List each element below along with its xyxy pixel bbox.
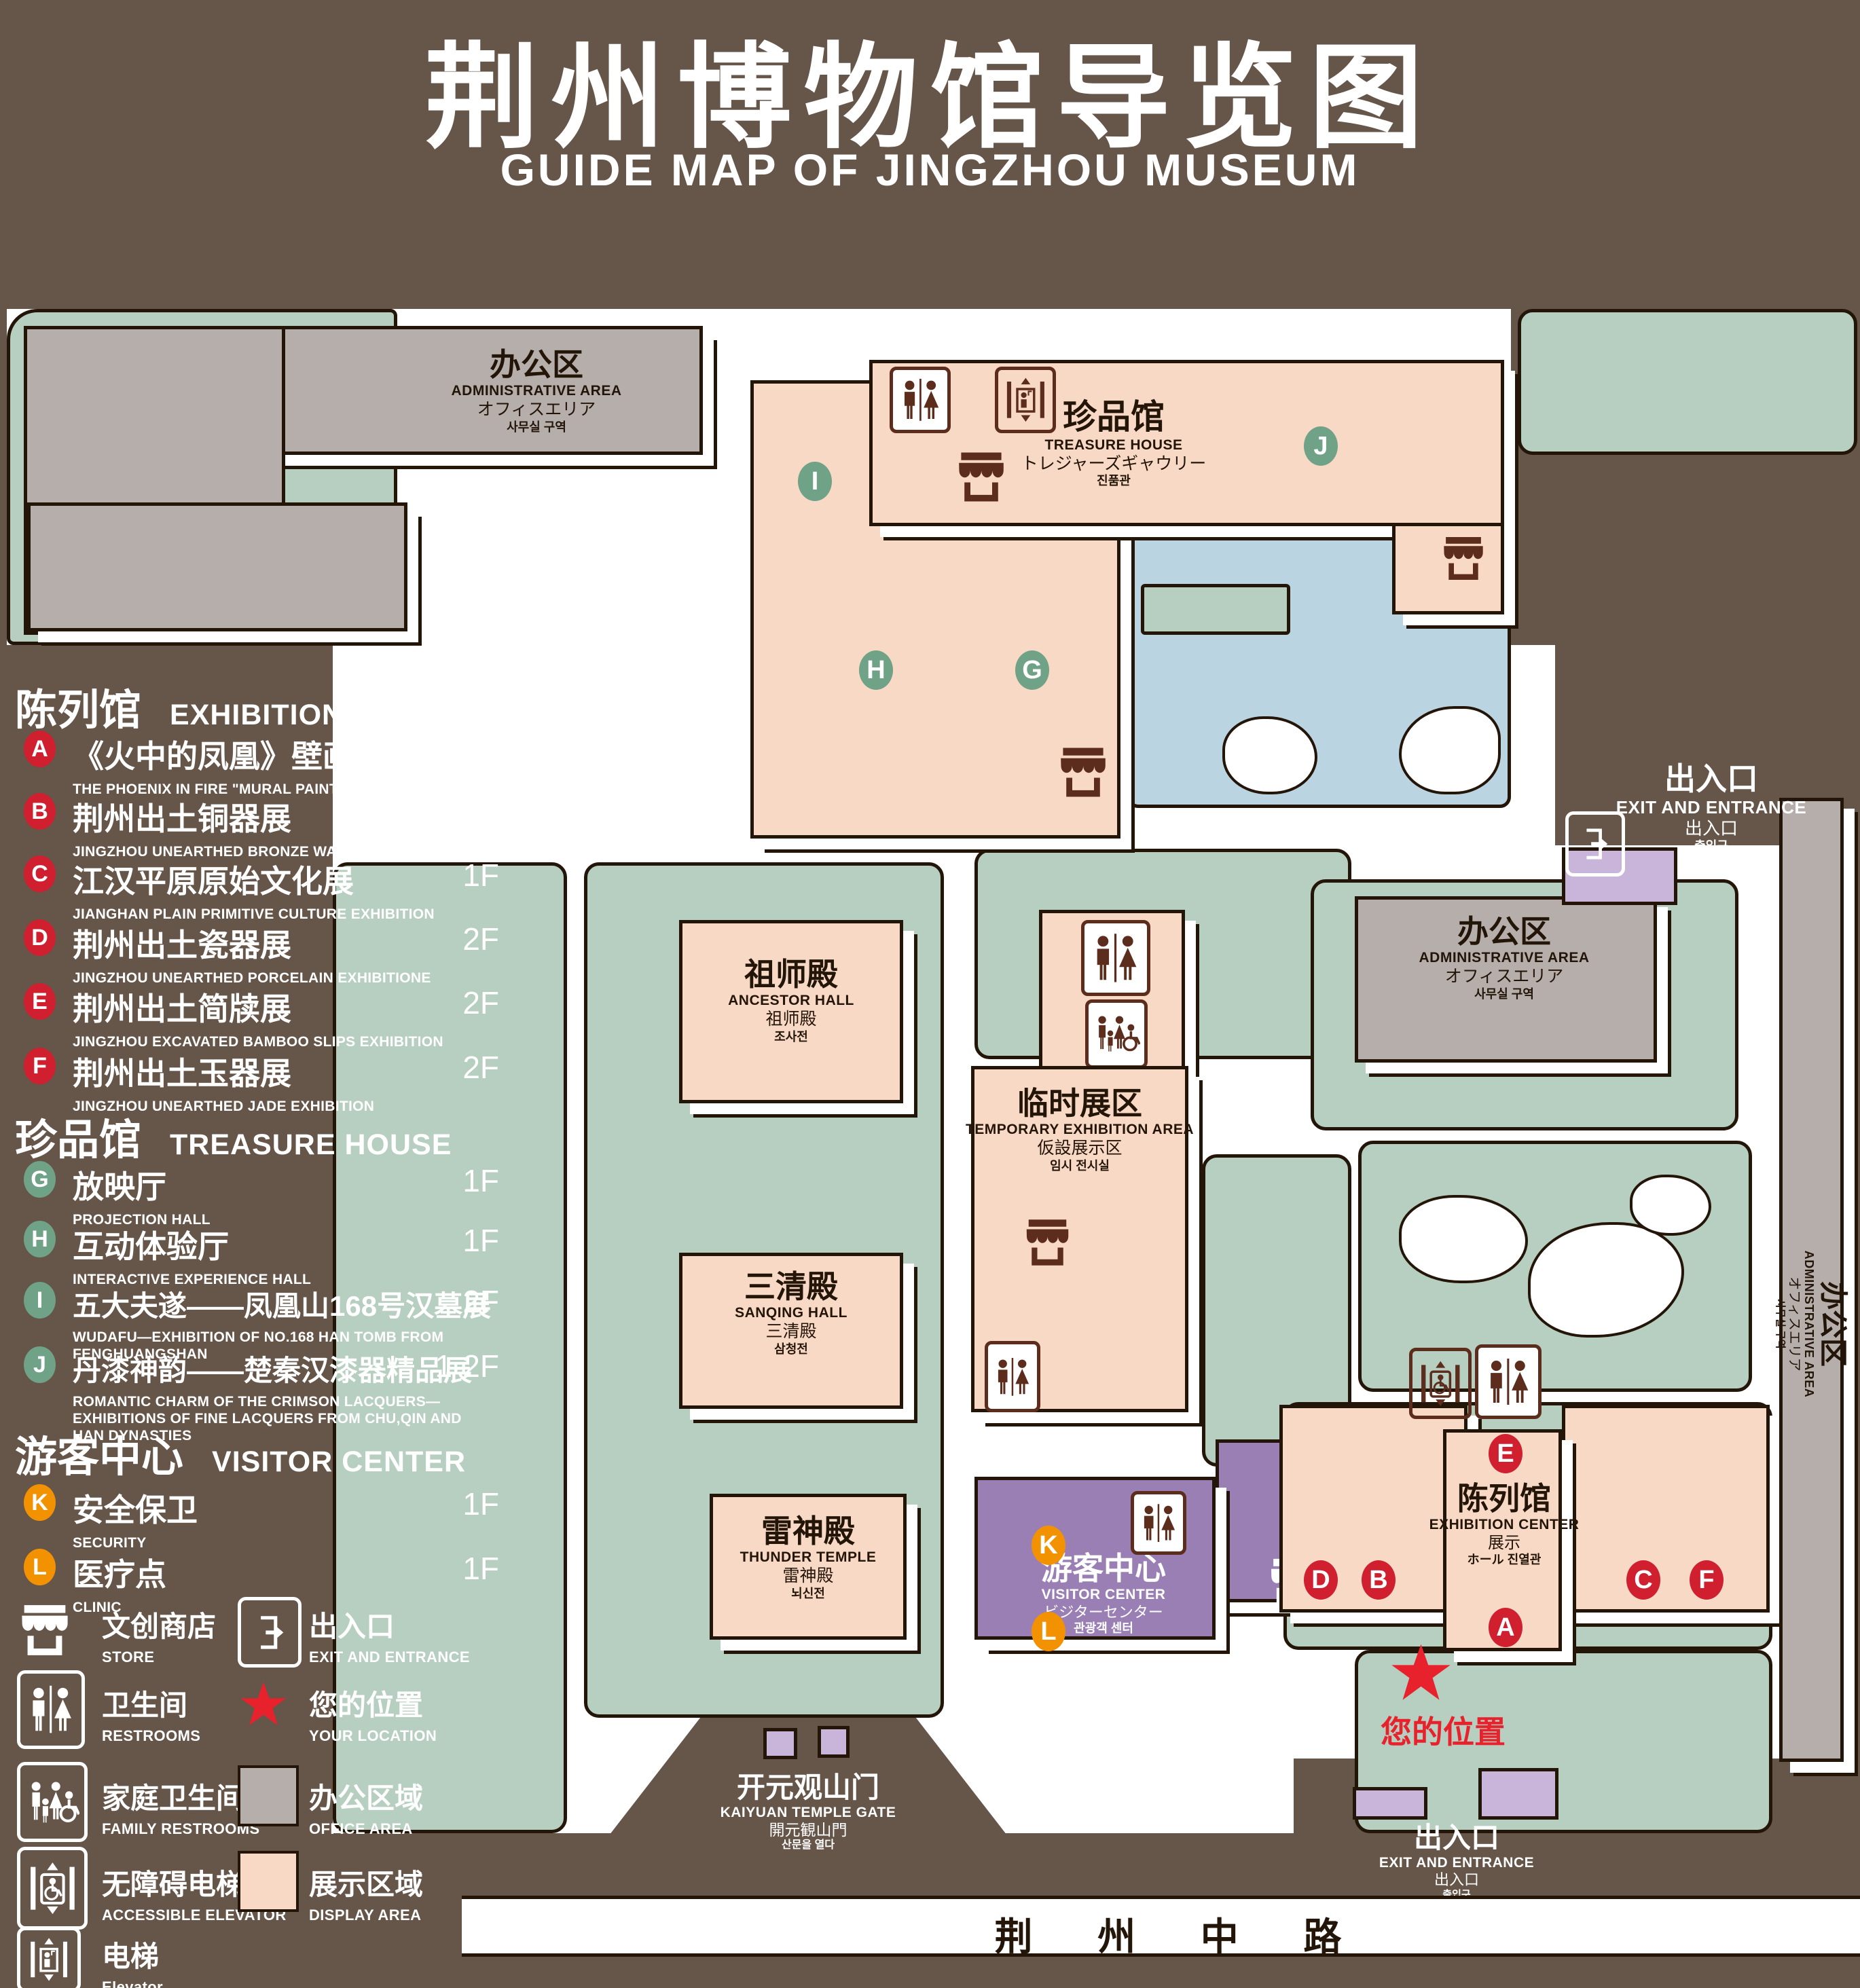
admin-center-label: 办公区 ADMINISTRATIVE AREA オフィスエリア 사무실 구역 (1419, 913, 1590, 1001)
legend-restroom-label: 卫生间RESTROOMS (102, 1682, 200, 1745)
store-icon (954, 448, 1008, 506)
store-icon (17, 1602, 73, 1658)
your-location-star-icon (1389, 1643, 1453, 1704)
store-icon (1440, 533, 1487, 584)
marker-K: K (1032, 1526, 1065, 1565)
marker-J: J (1304, 426, 1338, 466)
legend-item-G: G 放映厅 PROJECTION HALL 1F (24, 1162, 506, 1228)
restroom-icon (1081, 920, 1150, 996)
accessible-elevator-icon (17, 1847, 88, 1930)
display-area-swatch (238, 1851, 299, 1912)
legend-exit-label: 出入口EXIT AND ENTRANCE (309, 1604, 470, 1666)
legend-office-area-label: 办公区域OFFICE AREA (309, 1775, 423, 1838)
south-exit-label: 出入口 EXIT AND ENTRANCE 出入口 출입구 (1379, 1821, 1534, 1901)
store-icon (1056, 743, 1110, 801)
marker-L: L (1032, 1612, 1065, 1651)
legend-item-B: B 荆州出土铜器展 JINGZHOU UNEARTHED BRONZE WARE… (24, 794, 506, 860)
legend-item-E: E 荆州出土简牍展 JINGZHOU EXCAVATED BAMBOO SLIP… (24, 984, 506, 1050)
exhibition-center-label: 陈列馆 EXHIBITION CENTER 展示 ホール 진열관 (1429, 1480, 1580, 1568)
legend-location-label: 您的位置YOUR LOCATION (309, 1682, 437, 1745)
gate-block (818, 1726, 850, 1758)
legend-item-K: K 安全保卫 SECURITY 1F (24, 1486, 506, 1551)
legend-family-restroom-label: 家庭卫生间FAMILY RESTROOMS (102, 1775, 260, 1838)
elevator-icon (995, 367, 1056, 433)
restroom-icon (890, 367, 951, 433)
admin-nw-building-south (27, 502, 407, 631)
legend-item-D: D 荆州出土瓷器展 JINGZHOU UNEARTHED PORCELAIN E… (24, 921, 506, 987)
marker-H: H (859, 650, 893, 690)
kaiyuan-gate-label: 开元观山门 KAIYUAN TEMPLE GATE 開元観山門 산문을 열다 (721, 1771, 896, 1852)
admin-nw-label: 办公区 ADMINISTRATIVE AREA オフィスエリア 사무실 구역 (452, 346, 622, 435)
marker-F: F (1690, 1560, 1724, 1600)
marker-I: I (798, 462, 832, 501)
pond-island (1141, 584, 1290, 635)
restroom-icon (985, 1341, 1040, 1412)
marker-D: D (1304, 1560, 1338, 1600)
restroom-icon (1131, 1491, 1186, 1555)
elevator-icon (17, 1927, 81, 1988)
your-location-text: 您的位置 (1381, 1708, 1506, 1752)
legend-item-A: A 《火中的凤凰》壁画 THE PHOENIX IN FIRE "MURAL P… (24, 732, 506, 798)
garden-path-blob (1399, 1195, 1528, 1283)
lawn-northeast (1518, 309, 1857, 455)
exit-icon (1565, 811, 1625, 877)
marker-G: G (1015, 650, 1049, 690)
family-restroom-icon (1085, 999, 1148, 1069)
road-name: 荆 州 中 路 (876, 1907, 1487, 1962)
marker-C: C (1626, 1560, 1660, 1600)
ancestor-hall-label: 祖师殿 ANCESTOR HALL 祖师殿 조사전 (728, 956, 854, 1044)
legend-elevator-label: 电梯Elevator (102, 1934, 163, 1988)
sanqing-hall-label: 三清殿 SANQING HALL 三清殿 삼청전 (735, 1268, 847, 1357)
marker-E: E (1489, 1434, 1522, 1473)
exhibition-center-east-wing (1562, 1405, 1770, 1613)
marker-A: A (1489, 1608, 1522, 1647)
legend-section-visitor-center: 游客中心VISITOR CENTER (15, 1422, 466, 1484)
restroom-icon (1475, 1344, 1542, 1419)
entrance-block (1478, 1768, 1558, 1820)
legend-display-area-label: 展示区域DISPLAY AREA (309, 1862, 423, 1924)
page-subtitle: GUIDE MAP OF JINGZHOU MUSEUM (0, 144, 1860, 196)
accessible-elevator-icon (1409, 1348, 1472, 1419)
temporary-exhibition-label: 临时展区 TEMPORARY EXHIBITION AREA 仮設展示区 임시 … (966, 1085, 1194, 1173)
east-exit-label: 出入口 EXIT AND ENTRANCE 出入口 출입구 (1616, 760, 1807, 853)
legend-store-label: 文创商店STORE (102, 1604, 216, 1666)
legend-item-C: C 江汉平原原始文化展 JIANGHAN PLAIN PRIMITIVE CUL… (24, 857, 506, 923)
gate-block (763, 1728, 797, 1759)
location-star-icon (239, 1681, 288, 1729)
legend-section-exhibition-center: 陈列馆EXHIBITION CENTER (15, 676, 477, 737)
entrance-block (1353, 1787, 1427, 1820)
marker-B: B (1362, 1560, 1396, 1600)
exit-icon (238, 1597, 302, 1668)
family-restroom-icon (17, 1762, 88, 1842)
legend-item-H: H 互动体验厅 INTERACTIVE EXPERIENCE HALL 1F (24, 1222, 506, 1288)
thunder-temple-label: 雷神殿 THUNDER TEMPLE 雷神殿 뇌신전 (740, 1513, 877, 1601)
legend-section-treasure-house: 珍品馆TREASURE HOUSE (15, 1105, 452, 1166)
restroom-icon (17, 1670, 85, 1749)
office-area-swatch (238, 1765, 299, 1826)
garden-path-blob (1630, 1175, 1711, 1236)
admin-east-label: 办公区 ADMINISTRATIVE AREA オフィスエリア 사무실 구역 (1781, 1120, 1842, 1528)
south-walkway (333, 1833, 1860, 1898)
store-icon (1022, 1215, 1073, 1270)
pond-path (1222, 716, 1317, 794)
guide-map-poster: 荆州博物馆导览图 GUIDE MAP OF JINGZHOU MUSEUM 办公… (0, 0, 1860, 1988)
